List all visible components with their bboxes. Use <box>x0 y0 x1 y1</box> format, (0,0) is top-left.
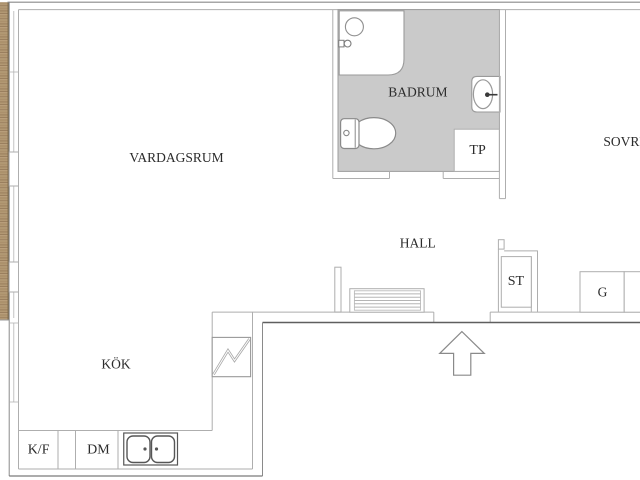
svg-text:G: G <box>598 285 608 300</box>
svg-text:HALL: HALL <box>400 236 436 251</box>
svg-text:VARDAGSRUM: VARDAGSRUM <box>129 150 223 165</box>
svg-text:BADRUM: BADRUM <box>388 85 447 100</box>
svg-text:DM: DM <box>87 442 110 457</box>
svg-text:TP: TP <box>469 143 486 158</box>
svg-text:K/F: K/F <box>28 442 50 457</box>
svg-text:KÖK: KÖK <box>101 357 130 372</box>
svg-text:ST: ST <box>508 274 525 289</box>
svg-text:SOVRUM: SOVRUM <box>603 134 640 149</box>
